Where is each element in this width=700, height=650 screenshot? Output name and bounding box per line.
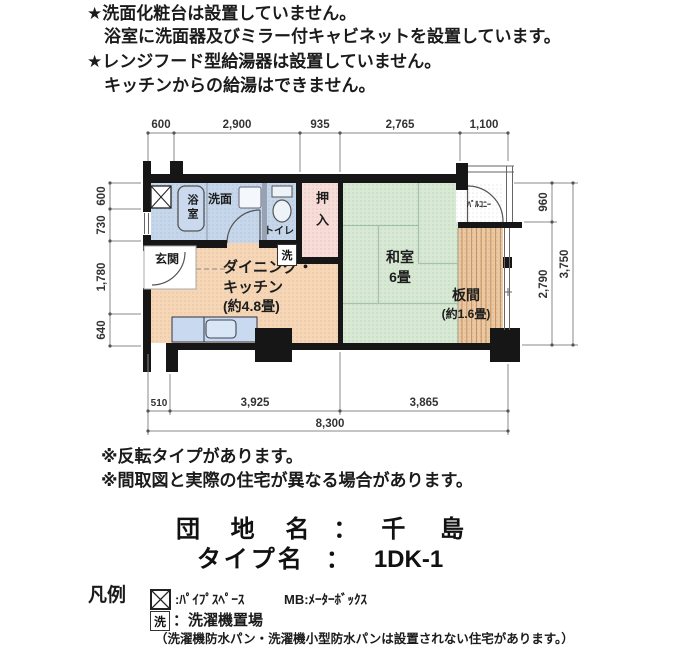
legend-mb-label: MB:ﾒｰﾀｰﾎﾞｯｸｽ xyxy=(284,592,367,608)
type-name-label: タイプ名 xyxy=(197,539,305,574)
laundry-spot-icon: 洗 xyxy=(277,244,297,266)
legend-pipe-label: :ﾊﾟｲﾌﾟｽﾍﾟｰｽ xyxy=(175,592,244,608)
legend-laundry-label: ：洗濯機置場 xyxy=(173,612,263,630)
washroom-label: 洗面 xyxy=(208,190,232,207)
dim-top-1100: 1,100 xyxy=(470,119,499,131)
note-bottom-1: ※反転タイプがあります。 xyxy=(101,447,303,467)
dim-left-1780: 1,780 xyxy=(96,263,108,292)
toilet-tank-icon xyxy=(272,186,292,197)
type-title-row: タイプ名 ： 1DK-1 xyxy=(140,539,500,574)
dim-bottom-510: 510 xyxy=(151,398,168,409)
dim-bottom-3925: 3,925 xyxy=(241,397,270,409)
itanoma-size-label: (約1.6畳) xyxy=(420,305,512,322)
dim-right-2790: 2,790 xyxy=(538,270,550,299)
floorplan-page: ★洗面化粧台は設置していません。 浴室に洗面器及びミラー付キャビネットを設置して… xyxy=(0,0,700,650)
toilet-label: トイレ xyxy=(264,222,294,237)
washitsu-size-label: 6畳 xyxy=(362,267,438,287)
dim-right-960: 960 xyxy=(538,192,550,211)
dk-size-label: (約4.8畳) xyxy=(223,297,313,315)
x-glyph xyxy=(152,591,169,608)
pipe-space-icon xyxy=(151,186,171,208)
bath-label: 浴室 xyxy=(184,194,200,222)
dk-label-line2: キッチン xyxy=(223,278,313,298)
pipe-space-legend-icon xyxy=(150,589,171,610)
dk-label-line1: ダイニング・ xyxy=(223,258,313,278)
dim-bottom-8300: 8,300 xyxy=(316,418,345,430)
legend-heading: 凡例 xyxy=(88,585,126,608)
washbasin-icon xyxy=(239,187,261,208)
dim-top-935: 935 xyxy=(310,119,330,131)
dim-left-600: 600 xyxy=(96,186,108,205)
legend-note: （洗濯機防水パン・洗濯機小型防水パンは設置されない住宅があります。） xyxy=(155,632,574,647)
washitsu-label: 和室 xyxy=(362,247,438,267)
legend-laundry-icon: 洗 xyxy=(150,611,170,631)
dim-left-640: 640 xyxy=(96,320,108,339)
type-colon: ： xyxy=(326,539,350,574)
dim-top-600: 600 xyxy=(151,119,170,131)
itanoma-label: 板間 xyxy=(420,285,512,305)
sink-icon xyxy=(206,320,236,338)
balcony-label: ﾊﾞﾙｺﾆｰ xyxy=(454,199,504,210)
entrance-label: 玄関 xyxy=(155,250,179,267)
closet-label: 押入 xyxy=(312,191,331,235)
dim-bottom-3865: 3,865 xyxy=(410,397,439,409)
dim-left-730: 730 xyxy=(96,215,108,234)
dim-right-3750: 3,750 xyxy=(559,250,571,279)
type-name-value: 1DK-1 xyxy=(374,546,443,574)
toilet-bowl-icon xyxy=(273,200,291,222)
dim-top-2765: 2,765 xyxy=(386,119,415,131)
dim-top-2900: 2,900 xyxy=(223,119,252,131)
note-bottom-2: ※間取図と実際の住宅が異なる場合があります。 xyxy=(101,471,473,491)
